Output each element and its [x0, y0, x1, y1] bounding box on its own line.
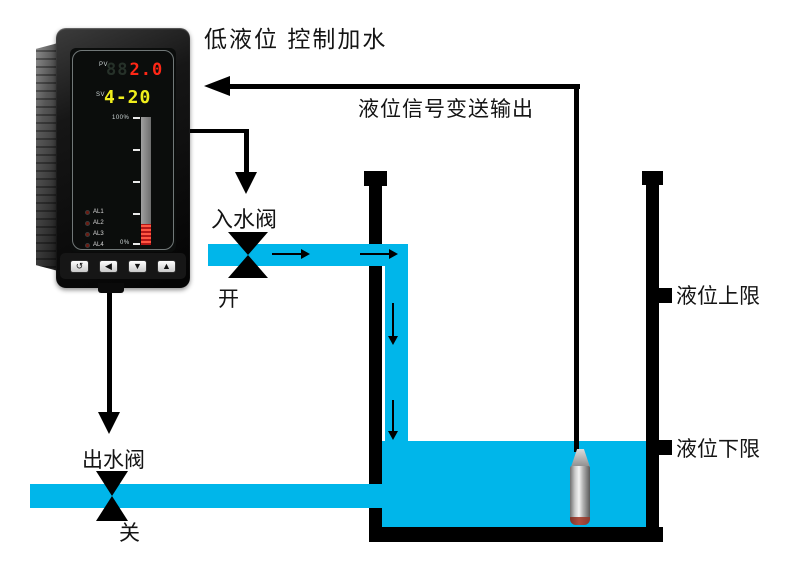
- outlet-valve-state: 关: [119, 517, 140, 547]
- led-label: AL1: [93, 209, 104, 215]
- led-label: AL4: [93, 242, 104, 248]
- tank-right-wall-cap: [642, 171, 663, 185]
- flow-arrow-right-icon: [272, 249, 310, 259]
- bargraph-bottom-label: 0%: [120, 240, 130, 246]
- tank-left-wall-cap: [364, 171, 387, 186]
- level-sensor-probe: [570, 466, 590, 518]
- shift-key-button: ◀: [99, 260, 118, 273]
- up-key-button: ▲: [157, 260, 176, 273]
- inlet-control-arrowhead-icon: [235, 172, 257, 194]
- upper-limit-label: 液位上限: [676, 280, 760, 310]
- pv-readout: 88 2.0: [106, 62, 163, 79]
- outlet-valve-icon: [96, 471, 128, 521]
- sv-value: 4-20: [104, 89, 151, 107]
- led-dot-icon: [85, 243, 90, 248]
- inlet-valve-label: 入水阀: [211, 202, 277, 234]
- bargraph-tick: [133, 117, 140, 119]
- cycle-icon: ↺: [71, 261, 88, 272]
- lower-limit-marker: [659, 440, 672, 455]
- flow-arrow-right-icon: [360, 249, 398, 259]
- bargraph-top-label: 100%: [112, 115, 129, 121]
- alarm-led-al2: AL2: [85, 220, 104, 226]
- alarm-led-al3: AL3: [85, 231, 104, 237]
- signal-line-horizontal: [228, 84, 580, 89]
- level-bargraph: [141, 117, 151, 245]
- tank-bottom: [369, 527, 663, 542]
- down-key-button: ▼: [128, 260, 147, 273]
- tank-right-wall: [646, 171, 659, 541]
- led-dot-icon: [85, 221, 90, 226]
- level-controller-instrument: PV 88 2.0 SV 4-20 100% 0%: [36, 28, 192, 292]
- led-label: AL3: [93, 231, 104, 237]
- left-arrow-icon: ◀: [100, 261, 117, 272]
- led-dot-icon: [85, 210, 90, 215]
- outlet-valve-label: 出水阀: [82, 444, 145, 474]
- level-bargraph-fill: [141, 224, 151, 245]
- inlet-control-line-horizontal: [184, 129, 248, 133]
- signal-output-label: 液位信号变送输出: [358, 93, 534, 123]
- level-sensor-tip: [570, 517, 590, 525]
- inlet-valve-state: 开: [218, 283, 239, 313]
- instrument-display-face: PV 88 2.0 SV 4-20 100% 0%: [70, 48, 176, 252]
- pv-value: 2.0: [129, 62, 163, 79]
- instrument-bottom-tab: [98, 283, 124, 293]
- signal-arrowhead-icon: [204, 76, 230, 96]
- bargraph-tick: [133, 213, 140, 215]
- signal-line-vertical: [574, 84, 579, 452]
- bargraph-tick: [133, 181, 140, 183]
- flow-arrow-down-icon: [388, 400, 398, 440]
- led-label: AL2: [93, 220, 104, 226]
- bargraph-tick: [133, 243, 140, 245]
- up-arrow-icon: ▲: [158, 261, 175, 272]
- pv-ghost-digits: 88: [106, 62, 128, 79]
- led-dot-icon: [85, 232, 90, 237]
- level-control-diagram: 低液位 控制加水 液位信号变送输出 入水阀 开 出水阀 关 液位上限 液位下限 …: [0, 0, 790, 566]
- outlet-control-line-vertical: [107, 284, 112, 414]
- outlet-pipe: [30, 484, 400, 508]
- down-arrow-icon: ▼: [129, 261, 146, 272]
- tank-water: [382, 441, 646, 527]
- upper-limit-marker: [659, 288, 672, 303]
- alarm-led-al1: AL1: [85, 209, 104, 215]
- inlet-valve-icon: [228, 232, 268, 278]
- diagram-title: 低液位 控制加水: [204, 20, 387, 54]
- lower-limit-label: 液位下限: [676, 433, 760, 463]
- cycle-key-button: ↺: [70, 260, 89, 273]
- alarm-led-al4: AL4: [85, 242, 104, 248]
- outlet-control-arrowhead-icon: [98, 412, 120, 434]
- inlet-control-line-vertical: [244, 129, 249, 174]
- instrument-front-bezel: PV 88 2.0 SV 4-20 100% 0%: [56, 28, 190, 288]
- instrument-key-strip: ↺ ◀ ▼ ▲: [60, 253, 186, 279]
- bargraph-tick: [133, 149, 140, 151]
- flow-arrow-down-icon: [388, 303, 398, 345]
